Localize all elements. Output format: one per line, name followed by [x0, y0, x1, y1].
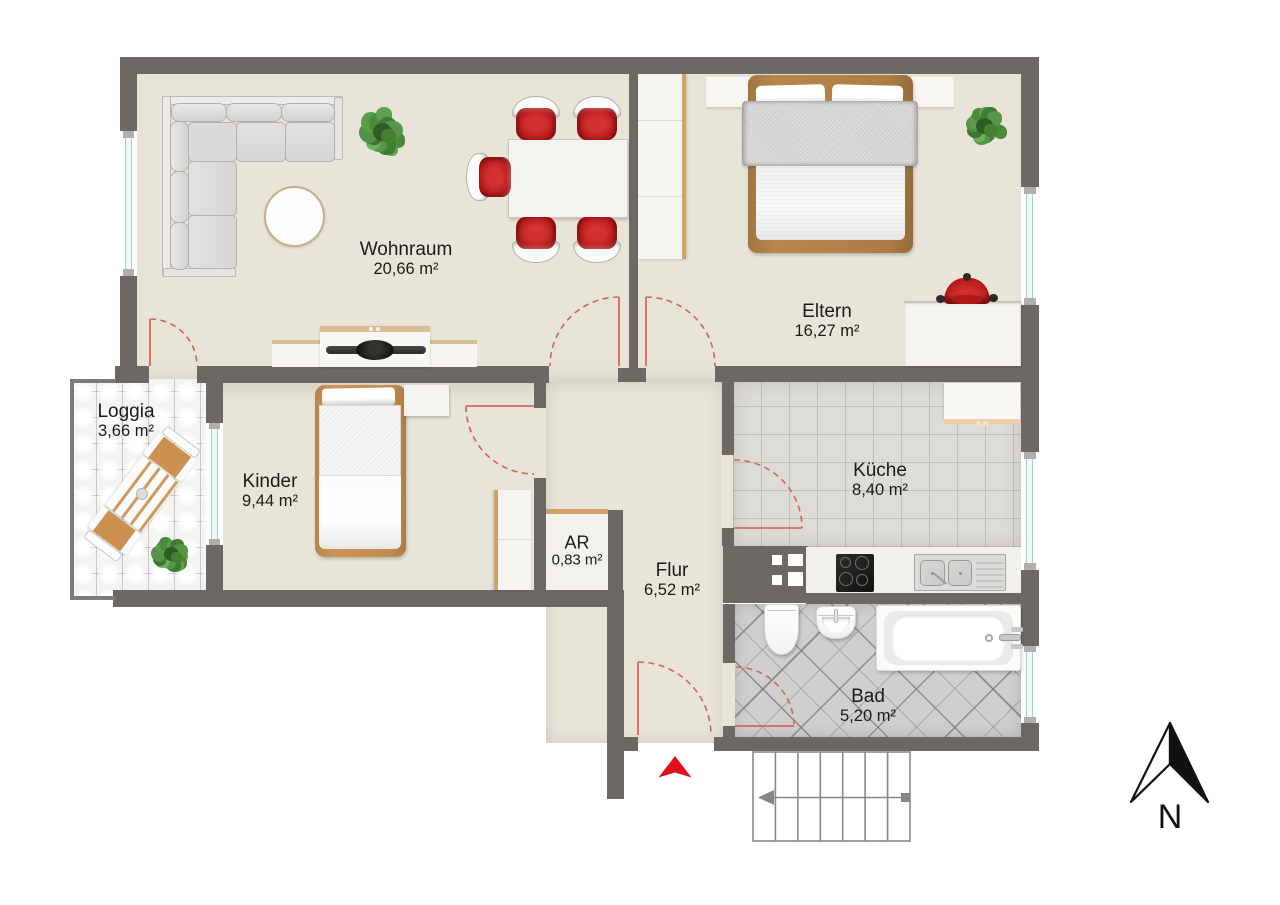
svg-text:N: N [1158, 798, 1183, 836]
